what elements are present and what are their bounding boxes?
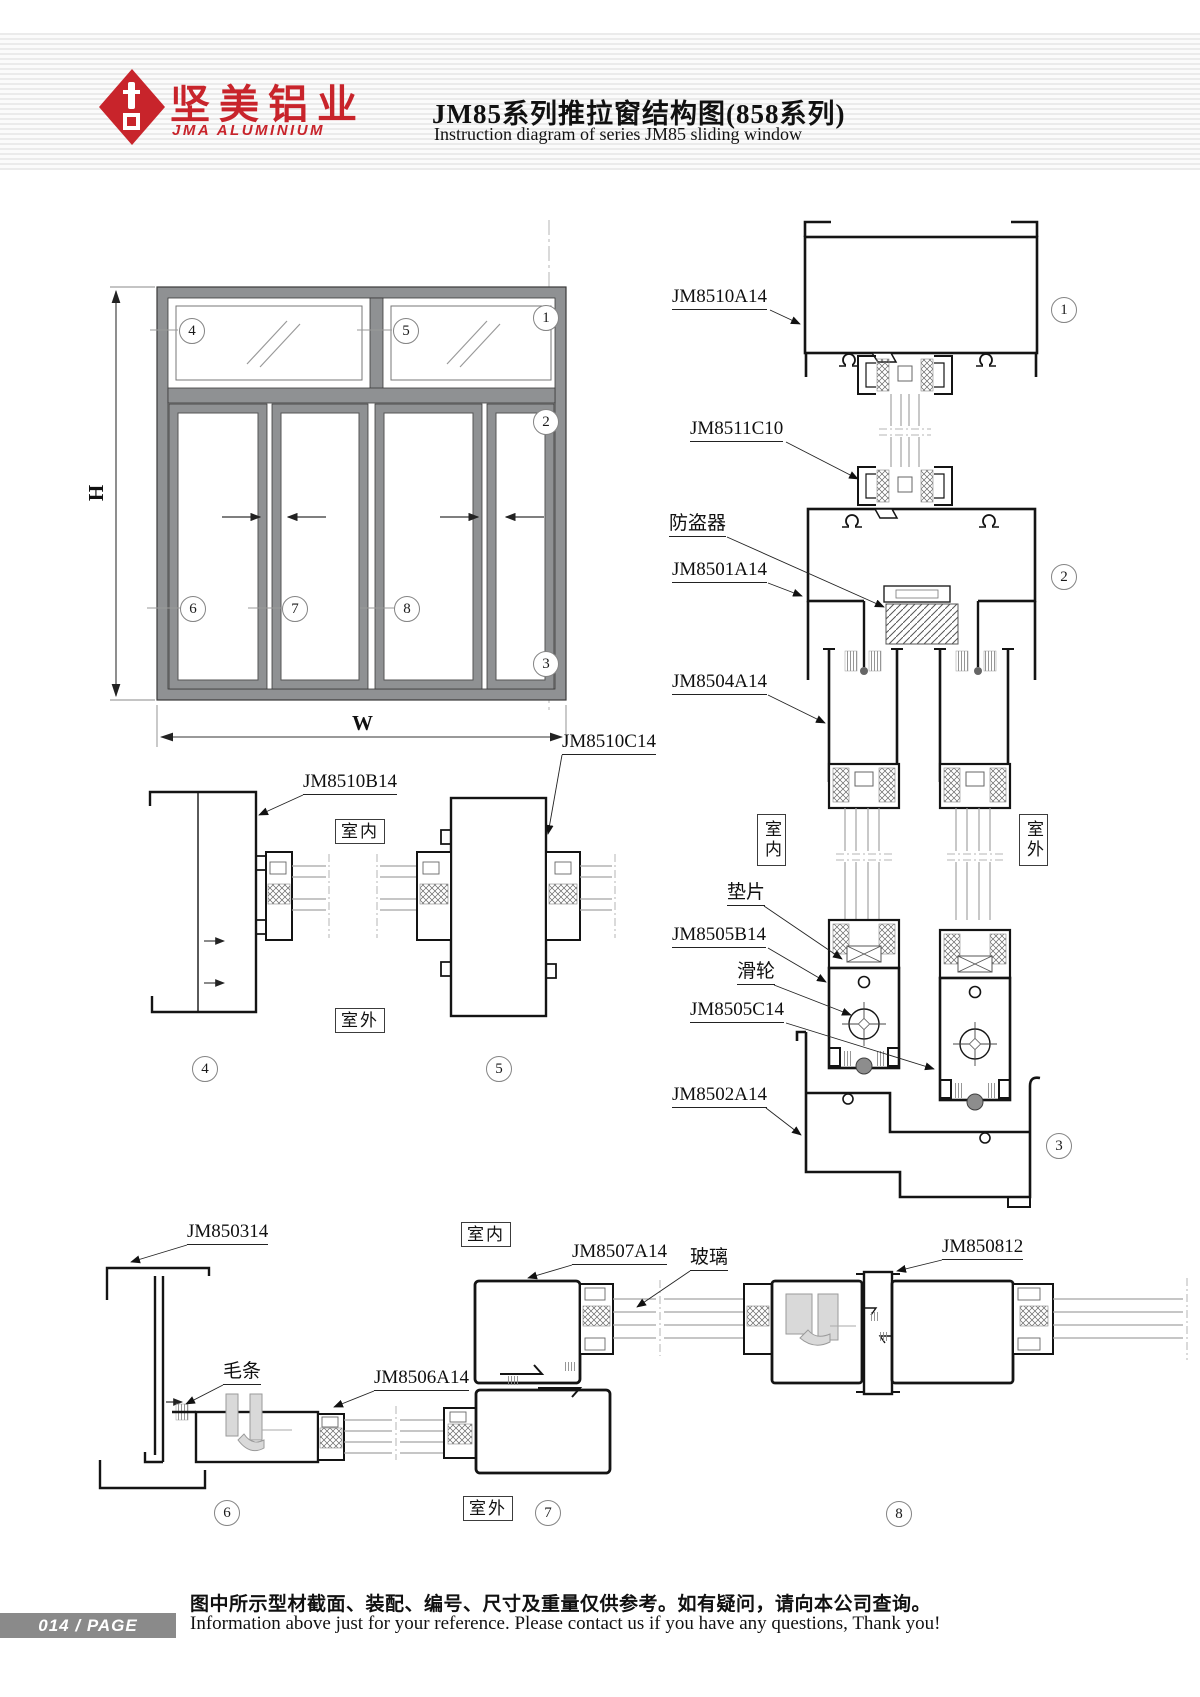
part-label-hualun: 滑轮 bbox=[737, 961, 775, 985]
part-label-dianpian: 垫片 bbox=[727, 882, 765, 906]
marker-1-elevation: 1 bbox=[533, 305, 559, 331]
dimension-w-label: W bbox=[352, 712, 373, 734]
room-label-indoor-bottom: 室内 bbox=[461, 1222, 511, 1247]
part-label-jm8510a14: JM8510A14 bbox=[672, 286, 767, 310]
part-label-jm8502a14: JM8502A14 bbox=[672, 1084, 767, 1108]
part-label-jm8510b14: JM8510B14 bbox=[303, 771, 397, 795]
part-label-jm8510c14: JM8510C14 bbox=[562, 731, 656, 755]
part-label-jm8501a14: JM8501A14 bbox=[672, 559, 767, 583]
marker-4-elevation: 4 bbox=[179, 318, 205, 344]
marker-7-elevation: 7 bbox=[282, 596, 308, 622]
track-profiles bbox=[823, 649, 1014, 782]
logo-company-name-en: JMA ALUMINIUM bbox=[172, 122, 325, 139]
room-label-outdoor-section: 室外 bbox=[1019, 814, 1048, 866]
marker-3-elevation: 3 bbox=[533, 651, 559, 677]
jma-logo bbox=[96, 66, 168, 148]
page-word: PAGE bbox=[87, 1616, 138, 1635]
part-label-boli: 玻璃 bbox=[690, 1247, 728, 1271]
marker-3-section: 3 bbox=[1046, 1133, 1072, 1159]
marker-8-elevation: 8 bbox=[394, 596, 420, 622]
room-label-outdoor-mid: 室外 bbox=[335, 1008, 385, 1033]
part-label-maotiao: 毛条 bbox=[223, 1361, 261, 1385]
vent-glass-unit bbox=[858, 356, 952, 505]
marker-2-section: 2 bbox=[1051, 564, 1077, 590]
marker-6-section: 6 bbox=[214, 1500, 240, 1526]
marker-8-section: 8 bbox=[886, 1501, 912, 1527]
page-subtitle: Instruction diagram of series JM85 slidi… bbox=[434, 124, 802, 145]
marker-6-elevation: 6 bbox=[180, 596, 206, 622]
dimension-h-label: H bbox=[85, 485, 107, 501]
dimension-h-lines bbox=[110, 287, 155, 700]
sash-glass-units bbox=[829, 764, 1010, 978]
page-separator: / bbox=[75, 1616, 81, 1635]
part-label-jm8505c14: JM8505C14 bbox=[690, 999, 784, 1023]
marker-5-elevation: 5 bbox=[393, 318, 419, 344]
room-label-indoor-section: 室内 bbox=[757, 814, 786, 866]
part-label-jm850812: JM850812 bbox=[942, 1236, 1023, 1260]
transom-profile bbox=[808, 509, 1035, 680]
part-label-jm8507a14: JM8507A14 bbox=[572, 1241, 667, 1265]
elevation-view bbox=[110, 220, 566, 747]
page-number-bar: 014 / PAGE bbox=[0, 1613, 176, 1638]
part-label-jm8504a14: JM8504A14 bbox=[672, 671, 767, 695]
marker-1-section: 1 bbox=[1051, 297, 1077, 323]
horizontal-section-6-7-8 bbox=[100, 1268, 1187, 1488]
part-label-jm8506a14: JM8506A14 bbox=[374, 1367, 469, 1391]
vertical-section-view bbox=[797, 222, 1040, 1207]
footer-note-cn: 图中所示型材截面、装配、编号、尺寸及重量仅供参考。如有疑问，请向本公司查询。 bbox=[190, 1589, 931, 1616]
part-label-jm8505b14: JM8505B14 bbox=[672, 924, 766, 948]
marker-7-section: 7 bbox=[535, 1500, 561, 1526]
marker-5-section: 5 bbox=[486, 1056, 512, 1082]
part-label-jm8511c10: JM8511C10 bbox=[690, 418, 783, 442]
marker-4-section: 4 bbox=[192, 1056, 218, 1082]
marker-2-elevation: 2 bbox=[533, 409, 559, 435]
footer-note-en: Information above just for your referenc… bbox=[190, 1613, 940, 1635]
page-number: 014 bbox=[38, 1616, 69, 1635]
room-label-indoor-mid: 室内 bbox=[335, 819, 385, 844]
part-label-jm850314: JM850314 bbox=[187, 1221, 268, 1245]
room-label-outdoor-bottom: 室外 bbox=[463, 1496, 513, 1521]
part-label-fangdaoqi: 防盗器 bbox=[669, 513, 726, 537]
catalog-page: 坚美铝业 JMA ALUMINIUM JM85系列推拉窗结构图(858系列) I… bbox=[0, 0, 1200, 1697]
bottom-rails-rollers bbox=[829, 968, 1010, 1110]
